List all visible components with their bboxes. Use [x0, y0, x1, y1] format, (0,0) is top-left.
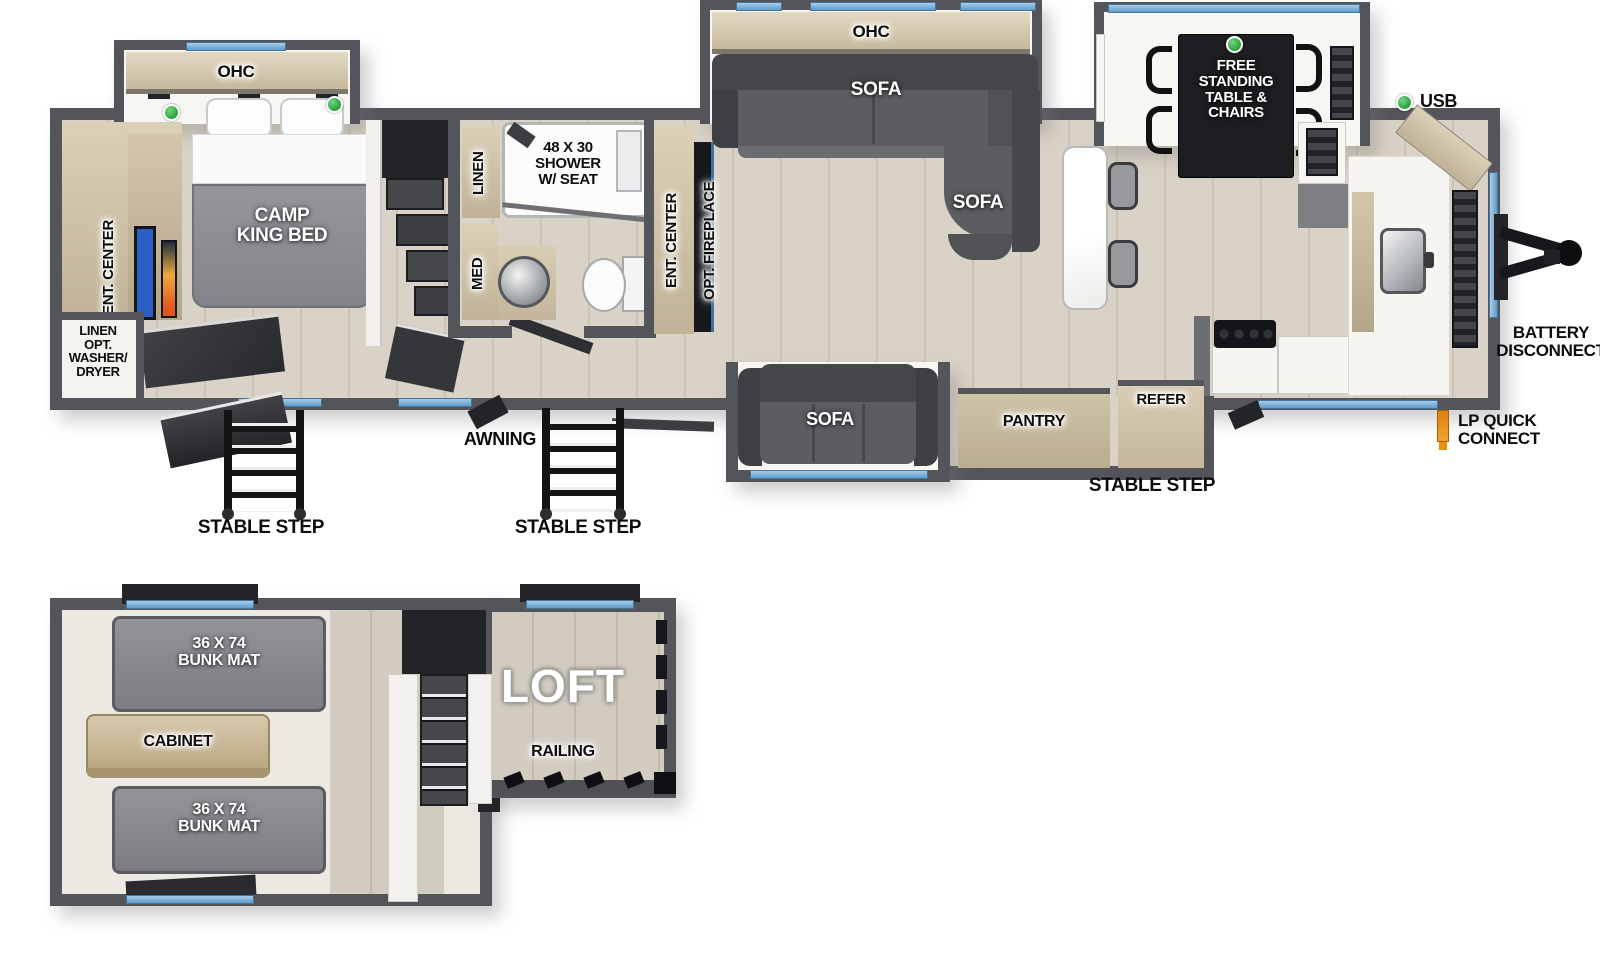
bedroom-slideout-window	[186, 42, 286, 51]
kitchen-bottom-window	[1258, 400, 1438, 409]
awning-rail	[612, 418, 714, 432]
toilet-bowl	[582, 258, 626, 312]
stable-step-mid-label: STABLE STEP	[502, 518, 654, 538]
reading-light-indicator	[326, 96, 343, 113]
living-fireplace-label: OPT. FIREPLACE	[701, 163, 718, 318]
loft-window	[526, 600, 634, 609]
slide-sofa-back	[760, 364, 916, 402]
loft-rail-post	[656, 725, 667, 749]
stable-step-ladder	[542, 408, 624, 512]
dinette-window-left	[1096, 34, 1105, 122]
dinette-chair	[1146, 106, 1172, 154]
bath-linen-label: LINEN	[470, 134, 487, 212]
bunk-mat-bottom-label: 36 X 74 BUNK MAT	[119, 802, 319, 836]
loft-stairs	[420, 674, 468, 806]
shower-label: 48 X 30 SHOWER W/ SEAT	[512, 140, 624, 187]
loft-stair-opening	[402, 610, 486, 674]
loft-stair-wall-left	[388, 674, 418, 902]
loft-rail-post	[656, 690, 667, 714]
kitchen-faucet	[1424, 252, 1434, 268]
battery-disconnect-label: BATTERY DISCONNECT	[1496, 324, 1600, 360]
kitchen-range	[1212, 346, 1278, 394]
kitchen-microwave	[1306, 128, 1338, 176]
chaise-back	[1012, 90, 1040, 252]
island-stool	[1108, 240, 1138, 288]
sofa-slideout-window	[750, 470, 928, 479]
living-ent-center-label: ENT. CENTER	[663, 165, 680, 315]
slide-sofa-arm	[738, 368, 762, 466]
front-wardrobe	[1452, 190, 1478, 348]
bath-sink	[498, 256, 550, 308]
bath-wall-left	[448, 120, 460, 338]
stable-step-rear-label: STABLE STEP	[186, 518, 336, 538]
hitch-jack	[1544, 250, 1560, 264]
living-slideout-window	[810, 2, 936, 11]
loft-cabinet-label: CABINET	[88, 734, 268, 751]
loft-label: LOFT	[483, 662, 643, 710]
slide-sofa-arm	[914, 368, 938, 466]
table-light-indicator	[1226, 36, 1243, 53]
bunkroom-window-top	[126, 600, 254, 609]
stable-step-ladder	[224, 410, 304, 512]
stable-step-front-label: STABLE STEP	[1076, 476, 1228, 496]
bed-sheet	[192, 134, 372, 184]
kitchen-island	[1062, 146, 1108, 310]
lp-quick-connect-label: LP QUICK CONNECT	[1458, 412, 1568, 448]
chaise-sofa-label: SOFA	[928, 193, 1028, 213]
reading-light-indicator	[163, 104, 180, 121]
loft-stair-wall-right	[468, 674, 492, 804]
refer-label: REFER	[1120, 392, 1202, 408]
bunkroom-window-bottom	[126, 895, 254, 904]
rail-corner	[654, 772, 676, 794]
closet-wall	[52, 312, 144, 320]
lp-connector-tip	[1439, 442, 1447, 450]
living-slideout-window	[736, 2, 782, 11]
bath-wall-right	[644, 120, 654, 338]
stairwell-wall	[366, 120, 382, 346]
living-slideout-window	[960, 2, 1036, 11]
ohc-bracket	[148, 94, 170, 99]
lp-connector	[1437, 410, 1449, 442]
dinette-chair	[1146, 46, 1172, 94]
bedroom-tv	[134, 226, 156, 320]
sofa-label: SOFA	[826, 80, 926, 100]
bed-pillow	[206, 98, 272, 138]
stair-tread	[396, 214, 452, 246]
bedroom-ent-center-label: ENT. CENTER	[100, 210, 117, 325]
entry-door-mid	[398, 398, 472, 407]
bedroom-ohc-label: OHC	[186, 63, 286, 81]
kitchen-counter	[1278, 336, 1352, 394]
slide-sofa-label: SOFA	[780, 410, 880, 429]
pantry-label: PANTRY	[959, 414, 1109, 431]
front-cabinet-strip	[1352, 192, 1374, 332]
bath-med-label: MED	[469, 246, 486, 302]
kitchen-counter-gray	[1298, 184, 1348, 228]
dinette-window-blind	[1330, 46, 1354, 120]
loft-rail-post	[656, 655, 667, 679]
loft-rail-post	[656, 620, 667, 644]
stair-tread	[386, 178, 444, 210]
linen-washer-label: LINEN OPT. WASHER/ DRYER	[52, 324, 144, 379]
bed-mattress	[192, 184, 372, 308]
bath-wall-bottom	[448, 326, 512, 338]
dinette-table-label: FREE STANDING TABLE & CHAIRS	[1186, 58, 1286, 121]
living-ohc-label: OHC	[821, 23, 921, 41]
bunk-mat-top-label: 36 X 74 BUNK MAT	[119, 636, 319, 670]
rv-floorplan-page: OHC OHC ENT. CENTER	[0, 0, 1600, 959]
usb-indicator	[1396, 94, 1413, 111]
kitchen-sink	[1380, 228, 1426, 294]
awning-label: AWNING	[446, 430, 554, 449]
usb-label: USB	[1420, 92, 1470, 111]
railing-label: RAILING	[483, 744, 643, 761]
kitchen-cooktop	[1214, 320, 1276, 348]
island-stool	[1108, 162, 1138, 210]
dinette-slideout-window-top	[1108, 4, 1360, 13]
bedroom-fireplace	[161, 240, 177, 318]
dinette-chair	[1296, 44, 1322, 92]
bed-label: CAMP KING BED	[202, 206, 362, 246]
stair-opening	[382, 120, 456, 178]
